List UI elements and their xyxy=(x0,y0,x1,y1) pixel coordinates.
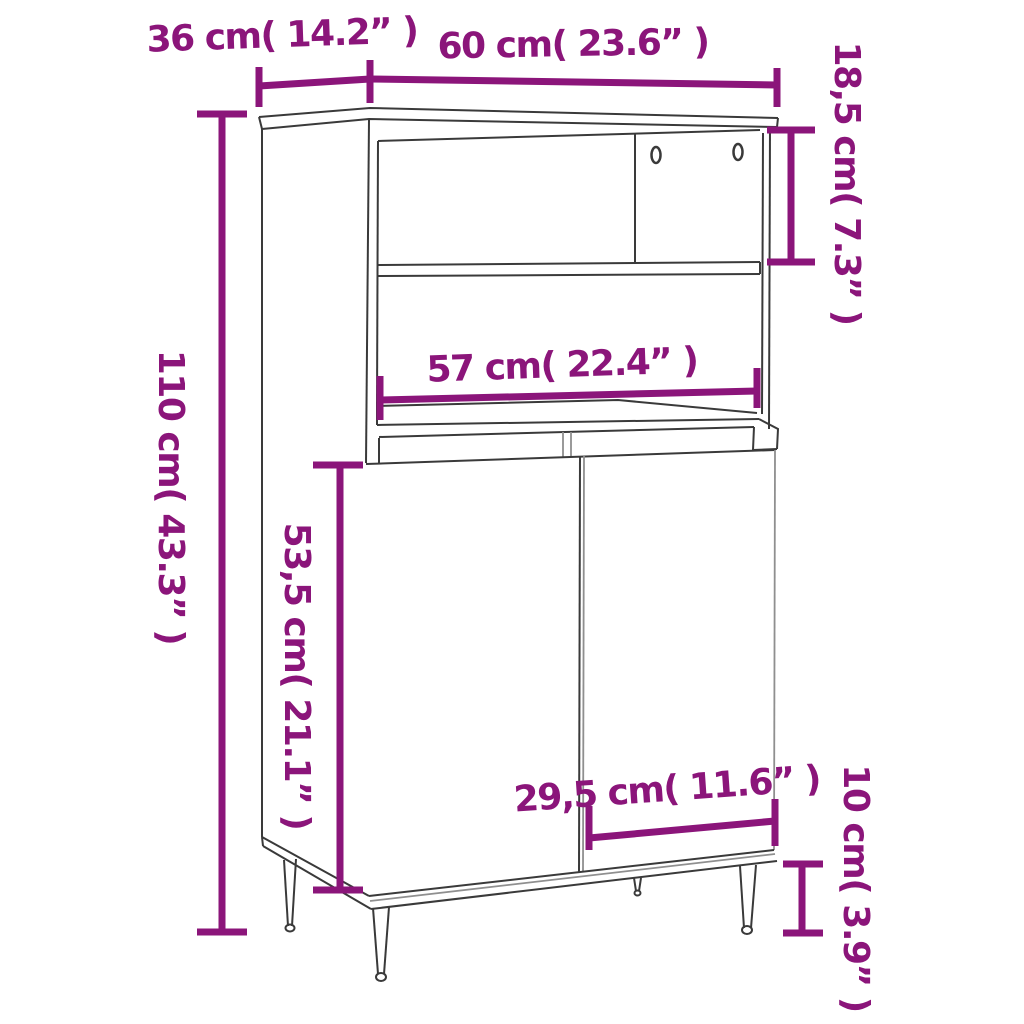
dimension-label-top-compartment-height: 18,5 cm( 7.3” ) xyxy=(828,41,864,324)
legs xyxy=(284,859,756,981)
dimension-top-compartment-line xyxy=(767,130,815,262)
dimension-width-line xyxy=(370,68,777,107)
screw-hole-icon xyxy=(652,147,661,163)
dimension-total-height-line xyxy=(197,114,247,932)
dimension-label-leg-height: 10 cm( 3.9” ) xyxy=(837,764,873,1011)
back-right-leg xyxy=(634,878,641,896)
back-left-leg xyxy=(284,859,296,932)
front-right-leg xyxy=(740,865,756,934)
dimension-diagram: 36 cm( 14.2” ) 60 cm( 23.6” ) 18,5 cm( 7… xyxy=(0,0,1024,1024)
dimension-depth-line xyxy=(259,60,370,107)
front-left-leg xyxy=(373,907,389,981)
dimension-label-inner-width: 57 cm( 22.4” ) xyxy=(426,343,698,388)
dimension-label-door-height: 53,5 cm( 21.1” ) xyxy=(278,523,314,830)
dimension-leg-height-line xyxy=(783,864,823,933)
middle-shelf xyxy=(378,262,760,276)
top-panel xyxy=(259,108,778,129)
screw-hole-icon xyxy=(734,144,743,160)
dimension-label-width: 60 cm( 23.6” ) xyxy=(437,25,709,66)
dimension-door-height-line xyxy=(313,465,363,890)
counter-top xyxy=(377,400,778,463)
screw-holes xyxy=(652,144,743,163)
dimension-label-depth: 36 cm( 14.2” ) xyxy=(146,13,418,58)
recessed-strip xyxy=(563,432,571,457)
dimension-label-total-height: 110 cm( 43.3” ) xyxy=(152,350,188,645)
